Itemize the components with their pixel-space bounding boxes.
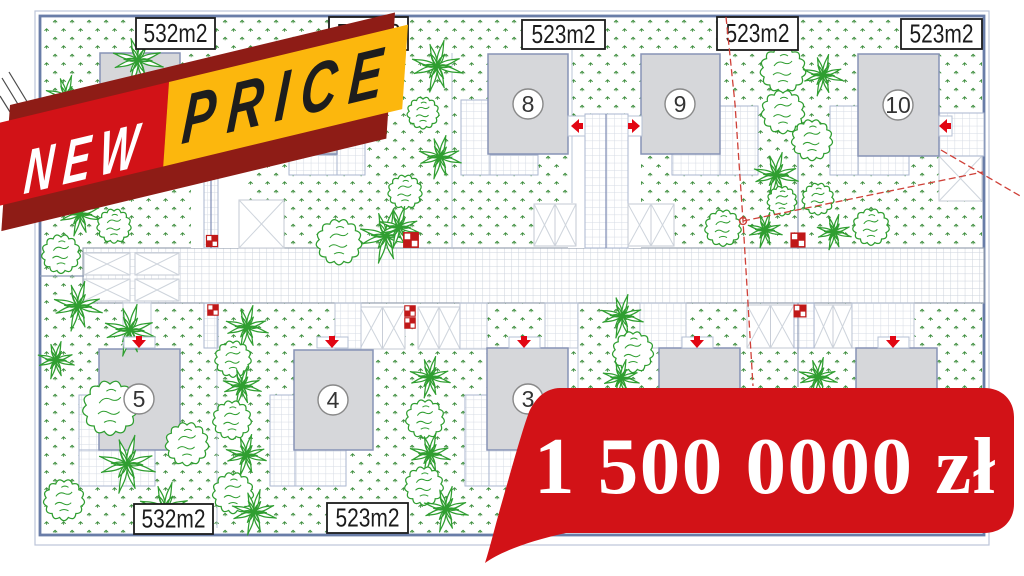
svg-text:532m2: 532m2 [144, 18, 208, 48]
svg-text:9: 9 [674, 91, 687, 117]
svg-text:523m2: 523m2 [910, 19, 974, 49]
svg-text:523m2: 523m2 [336, 503, 400, 533]
svg-text:4: 4 [327, 387, 340, 413]
svg-text:523m2: 523m2 [726, 18, 790, 48]
svg-text:10: 10 [885, 92, 911, 118]
svg-text:532m2: 532m2 [142, 504, 206, 534]
svg-text:5: 5 [133, 386, 146, 412]
svg-text:8: 8 [522, 91, 535, 117]
svg-text:1 500 0000 zł: 1 500 0000 zł [534, 421, 997, 511]
svg-text:523m2: 523m2 [532, 19, 596, 49]
